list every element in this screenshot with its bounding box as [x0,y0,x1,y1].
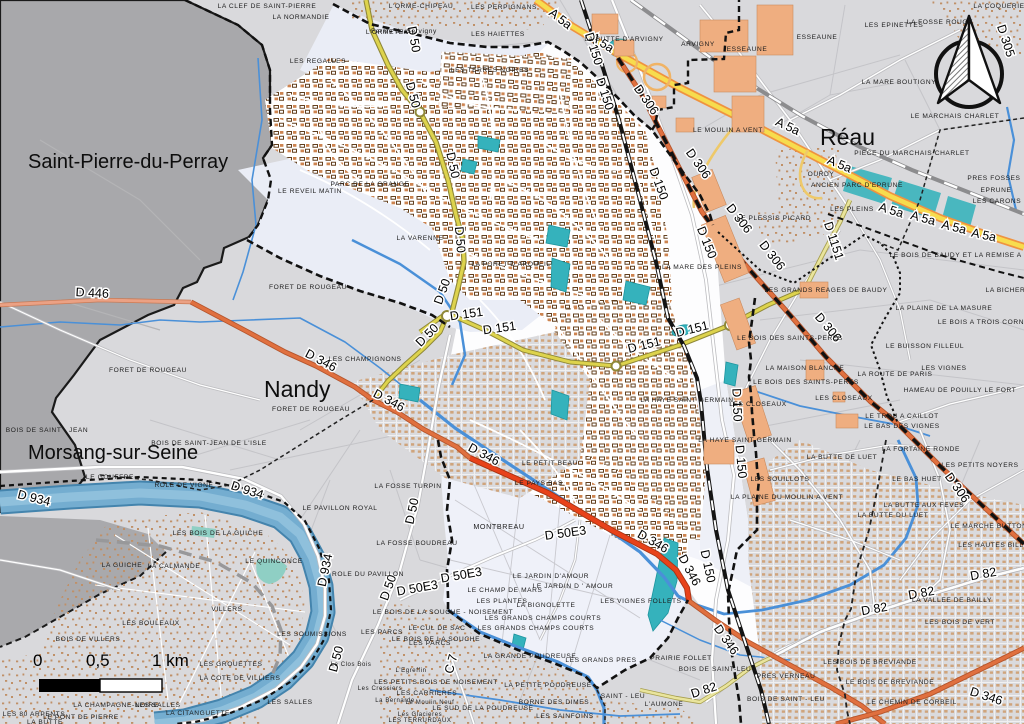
svg-text:LA BUTTE D'ARVIGNY: LA BUTTE D'ARVIGNY [584,36,663,43]
svg-text:EPRUNE: EPRUNE [980,187,1011,194]
svg-text:LES HAUTES BILLES: LES HAUTES BILLES [958,542,1024,549]
svg-text:LES BOULEAUX: LES BOULEAUX [122,620,179,627]
svg-text:LES CLOSEAUX: LES CLOSEAUX [815,395,872,402]
svg-text:LE BOIS DES SAINTS-PERES: LE BOIS DES SAINTS-PERES [737,335,843,342]
svg-text:LA PLAINE DE LA MASURE: LA PLAINE DE LA MASURE [896,305,993,312]
svg-text:LE MOULIN A VENT: LE MOULIN A VENT [693,127,763,134]
svg-text:MONTBREAU: MONTBREAU [473,522,524,531]
svg-text:LE REVEIL MATIN: LE REVEIL MATIN [278,188,342,195]
svg-text:LES VIGNES FOLLETS: LES VIGNES FOLLETS [600,598,681,605]
svg-text:LES CARONS: LES CARONS [973,198,1022,205]
svg-text:LE CUL DE SAC: LE CUL DE SAC [408,625,465,632]
svg-text:L'AUMONE: L'AUMONE [645,701,684,708]
svg-text:Le Clos Bois: Le Clos Bois [331,662,372,668]
svg-text:LE BOIS DES SAINTS-PERES: LE BOIS DES SAINTS-PERES [753,379,859,386]
svg-text:LE QUINCONCE: LE QUINCONCE [245,558,302,565]
svg-text:LES BOIS DE VERT: LES BOIS DE VERT [925,619,995,626]
svg-text:OURDY: OURDY [808,171,835,178]
svg-text:LE BOIS DE BAUDY ET LA REMISE: LE BOIS DE BAUDY ET LA REMISE A CAJOT [889,252,1024,259]
svg-text:LES GRANDS PRES: LES GRANDS PRES [565,657,636,664]
svg-text:LE CHEMIN DE CORBEIL: LE CHEMIN DE CORBEIL [867,699,957,706]
svg-text:Les Cressiers: Les Cressiers [358,686,402,692]
svg-text:LE BOIS A TROIS CORNES: LE BOIS A TROIS CORNES [938,319,1024,326]
svg-text:LA CLEF DE SAINT-PIERRE: LA CLEF DE SAINT-PIERRE [218,3,317,10]
svg-text:LES REGALLES: LES REGALLES [290,58,346,65]
svg-text:LA CALMANDE: LA CALMANDE [148,563,201,570]
svg-text:LE GOUFFRE: LE GOUFFRE [86,474,134,481]
svg-text:PRES VERNEAU: PRES VERNEAU [757,673,816,680]
svg-text:LA BUTTE: LA BUTTE [27,719,63,724]
svg-text:LE PLESSIS PICARD: LE PLESSIS PICARD [737,215,811,222]
svg-text:LA PLAINE DU MOULIN A VENT: LA PLAINE DU MOULIN A VENT [731,494,843,501]
svg-text:LE BOIS DE BREVIANDE: LE BOIS DE BREVIANDE [846,679,935,686]
svg-text:LES SOUMISSIONS: LES SOUMISSIONS [277,631,347,638]
svg-text:Saint-Pierre-du-Perray: Saint-Pierre-du-Perray [28,151,228,173]
svg-text:LE SUD DE LA POUDREUSE: LE SUD DE LA POUDREUSE [432,705,533,712]
svg-text:ANCIEN PARC D'EPRUNE: ANCIEN PARC D'EPRUNE [811,182,903,189]
svg-text:LA BUTTE DE LUET: LA BUTTE DE LUET [807,454,877,461]
svg-text:LE BUISSON FILLEUL: LE BUISSON FILLEUL [886,343,964,350]
svg-text:SAINT - LEU: SAINT - LEU [601,693,646,700]
svg-text:PIECE DU MARCHAIS CHARLET: PIECE DU MARCHAIS CHARLET [854,150,969,157]
svg-text:L'ORMETEAU: L'ORMETEAU [366,29,414,36]
svg-text:LES GRANDS CHAMPS COURTS: LES GRANDS CHAMPS COURTS [478,625,595,632]
svg-text:D 446: D 446 [75,285,109,301]
svg-text:HAMEAU DE POUILLY LE FORT: HAMEAU DE POUILLY LE FORT [904,387,1017,394]
svg-text:LE JARDIN D ' AMOUR: LE JARDIN D ' AMOUR [533,583,614,590]
svg-text:LE CHAMP DE MARS: LE CHAMP DE MARS [467,587,542,594]
svg-text:Nandy: Nandy [264,376,331,402]
svg-text:LE BAS DES VIGNES: LE BAS DES VIGNES [864,423,939,430]
svg-text:LES BOIS DE LA GUICHE: LES BOIS DE LA GUICHE [173,530,264,537]
svg-text:LA CITANGUETTE: LA CITANGUETTE [166,710,230,717]
svg-text:PARC DE LA GRANGE: PARC DE LA GRANGE [331,181,410,188]
svg-text:LA NORMANDIE: LA NORMANDIE [272,14,329,21]
svg-text:LA HAYE SAINT-GERMAIN: LA HAYE SAINT-GERMAIN [698,437,791,444]
svg-text:ROLE DU PAVILLON: ROLE DU PAVILLON [332,571,404,578]
svg-text:LES SALLES: LES SALLES [267,699,312,706]
svg-text:LA FORTAINE RONDE: LA FORTAINE RONDE [882,446,960,453]
svg-text:LES SAINFOINS: LES SAINFOINS [536,713,594,720]
svg-text:LES TERRES NOIRES: LES TERRES NOIRES [451,67,529,74]
svg-text:ESSEAUNE: ESSEAUNE [727,46,768,53]
svg-text:VILLERS: VILLERS [211,606,242,613]
svg-text:LA CHAMPAGNE-NOIRE: LA CHAMPAGNE-NOIRE [73,702,158,709]
svg-text:0: 0 [33,651,42,670]
svg-text:LA GUICHE: LA GUICHE [102,562,143,569]
svg-text:LA BUTTE AUX FEVES: LA BUTTE AUX FEVES [884,502,964,509]
svg-text:LA COQUERIE: LA COQUERIE [973,3,1024,10]
svg-text:ARVIGNY: ARVIGNY [681,41,715,48]
svg-text:LA FORET D'ARQUEIL: LA FORET D'ARQUEIL [471,261,550,268]
svg-text:LA ROUTE DE PARIS: LA ROUTE DE PARIS [858,371,933,378]
svg-text:LES TERRURDAUX: LES TERRURDAUX [389,718,452,724]
svg-text:ESSEAUNE: ESSEAUNE [797,34,838,41]
svg-text:LE BOIS DE LA SOUCHE - NOISEME: LE BOIS DE LA SOUCHE - NOISEMENT [373,609,513,616]
svg-text:0,5: 0,5 [86,651,110,670]
svg-text:LA BIGNOLETTE: LA BIGNOLETTE [516,602,575,609]
svg-text:PRAIRIE FOLLET: PRAIRIE FOLLET [650,655,712,662]
svg-text:D 150: D 150 [733,444,750,478]
svg-text:Le Moulin Neuf: Le Moulin Neuf [406,700,455,706]
svg-text:D 50: D 50 [452,226,468,254]
svg-text:PRES FOSSES: PRES FOSSES [967,175,1020,182]
svg-text:BOIS DE VILLERS: BOIS DE VILLERS [56,636,121,643]
svg-text:LES PLEINS: LES PLEINS [830,206,874,213]
svg-text:LE MARCHE BUTTON: LE MARCHE BUTTON [951,523,1024,530]
svg-text:LE JARDIN D'AMOUR: LE JARDIN D'AMOUR [513,573,589,580]
svg-text:LES PETITS NOYERS: LES PETITS NOYERS [941,462,1018,469]
svg-text:1 km: 1 km [152,651,189,670]
svg-text:LA GRANDE POUDREUSE: LA GRANDE POUDREUSE [484,653,577,660]
svg-text:LA VALLEE DE BAILLY: LA VALLEE DE BAILLY [912,597,992,604]
svg-text:LA VARENNE: LA VARENNE [397,235,444,242]
svg-text:LA HAYE SAINT GERMAIN: LA HAYE SAINT GERMAIN [640,397,733,404]
svg-text:FORET DE ROUGEAU: FORET DE ROUGEAU [109,367,187,374]
svg-text:ROLE DE VIGNE: ROLE DE VIGNE [154,482,213,489]
svg-text:L'Egreffin: L'Egreffin [395,668,426,674]
svg-text:LES HAIETTES: LES HAIETTES [471,31,525,38]
svg-text:LE PAVILLON ROYAL: LE PAVILLON ROYAL [302,505,377,512]
svg-text:LE PAYS BAS: LE PAYS BAS [515,480,563,487]
svg-text:LES CLOSEAUX: LES CLOSEAUX [729,401,786,408]
svg-text:LES PETITS BOIS DE NOISEMENT: LES PETITS BOIS DE NOISEMENT [374,679,498,686]
svg-text:LA MARE BOUTIGNY: LA MARE BOUTIGNY [862,79,936,86]
svg-text:LA FOSSE ROUGE: LA FOSSE ROUGE [907,19,973,26]
svg-text:LE TROU A CAILLOT: LE TROU A CAILLOT [865,413,938,420]
svg-text:LES PARCS: LES PARCS [361,629,403,636]
svg-text:LES GROUETTES: LES GROUETTES [199,661,262,668]
svg-text:LES PERPIGNANS: LES PERPIGNANS [471,4,537,11]
svg-text:LA MAISON BLANCHE: LA MAISON BLANCHE [766,365,845,372]
svg-text:LA FOSSE TURPIN: LA FOSSE TURPIN [374,483,441,490]
svg-text:BOIS DE SAINT-JEAN DE L'ISLE: BOIS DE SAINT-JEAN DE L'ISLE [151,440,267,447]
svg-text:LA BICHERE: LA BICHERE [986,287,1024,294]
svg-text:LE BAS HUET: LE BAS HUET [892,476,941,483]
svg-text:FORET DE ROUGEAU: FORET DE ROUGEAU [269,284,347,291]
svg-text:LA PETITE POUDREUSE: LA PETITE POUDREUSE [504,682,592,689]
svg-text:BOIS DE SAINT - JEAN: BOIS DE SAINT - JEAN [6,427,89,434]
svg-text:LA COTE DE VILLIERS: LA COTE DE VILLIERS [199,675,280,682]
svg-text:LES VIGNES: LES VIGNES [921,365,966,372]
svg-text:BOIS DE SAINT - LEU: BOIS DE SAINT - LEU [747,696,825,703]
svg-text:LA FOSSE BOUDREAU: LA FOSSE BOUDREAU [376,540,457,547]
svg-text:LA MARE DES PLEINS: LA MARE DES PLEINS [662,264,742,271]
svg-text:LES BOIS DE BREVIANDE: LES BOIS DE BREVIANDE [823,659,917,666]
svg-text:LES GRANDS REAGES DE BAUDY: LES GRANDS REAGES DE BAUDY [765,287,888,294]
svg-text:Réau: Réau [820,124,875,150]
svg-text:LE PETIT BEAU: LE PETIT BEAU [522,460,578,467]
svg-text:LES CARRIERES: LES CARRIERES [397,690,458,697]
svg-text:LA BUTTE DU LUET: LA BUTTE DU LUET [858,512,929,519]
svg-text:BOIS DE SAINT-LEU: BOIS DE SAINT-LEU [679,666,752,673]
svg-text:LES CHAMPIGNONS: LES CHAMPIGNONS [328,356,401,363]
svg-text:LE MARCHAIS CHARLET: LE MARCHAIS CHARLET [911,113,1000,120]
svg-text:L'ORME-CHIPEAU: L'ORME-CHIPEAU [389,3,454,10]
svg-text:LES PARCS: LES PARCS [409,640,451,647]
svg-text:LES GRANDS CHAMPS COURTS: LES GRANDS CHAMPS COURTS [485,615,602,622]
svg-text:FORET DE ROUGEAU: FORET DE ROUGEAU [272,406,350,413]
svg-text:LES SOUILLOTS: LES SOUILLOTS [750,476,809,483]
